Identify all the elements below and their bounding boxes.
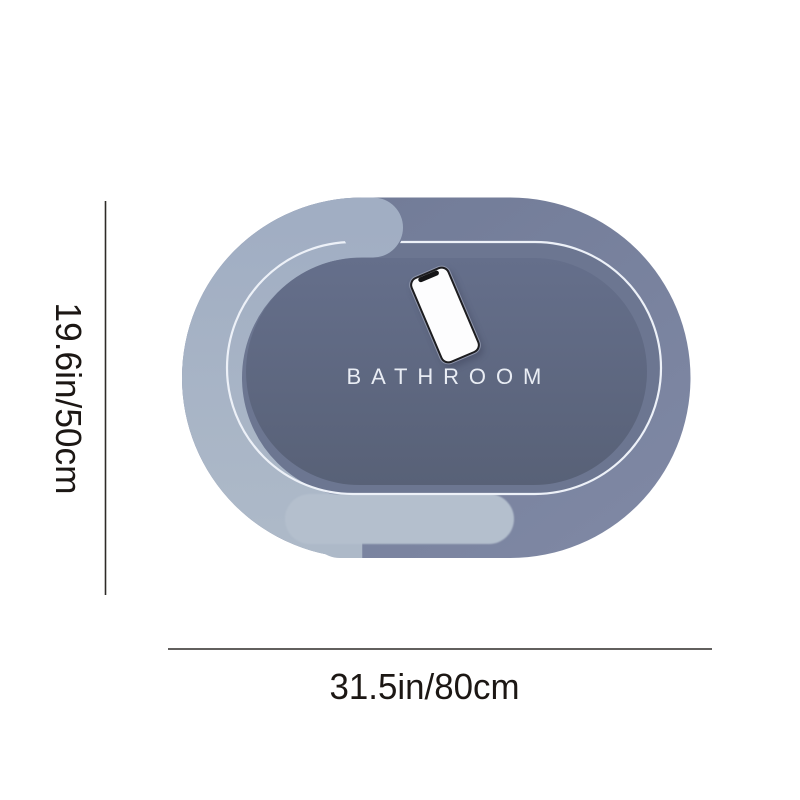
- svg-text:19.6in/50cm: 19.6in/50cm: [48, 303, 89, 495]
- svg-text:BATHROOM: BATHROOM: [347, 364, 552, 389]
- svg-text:31.5in/80cm: 31.5in/80cm: [330, 666, 520, 707]
